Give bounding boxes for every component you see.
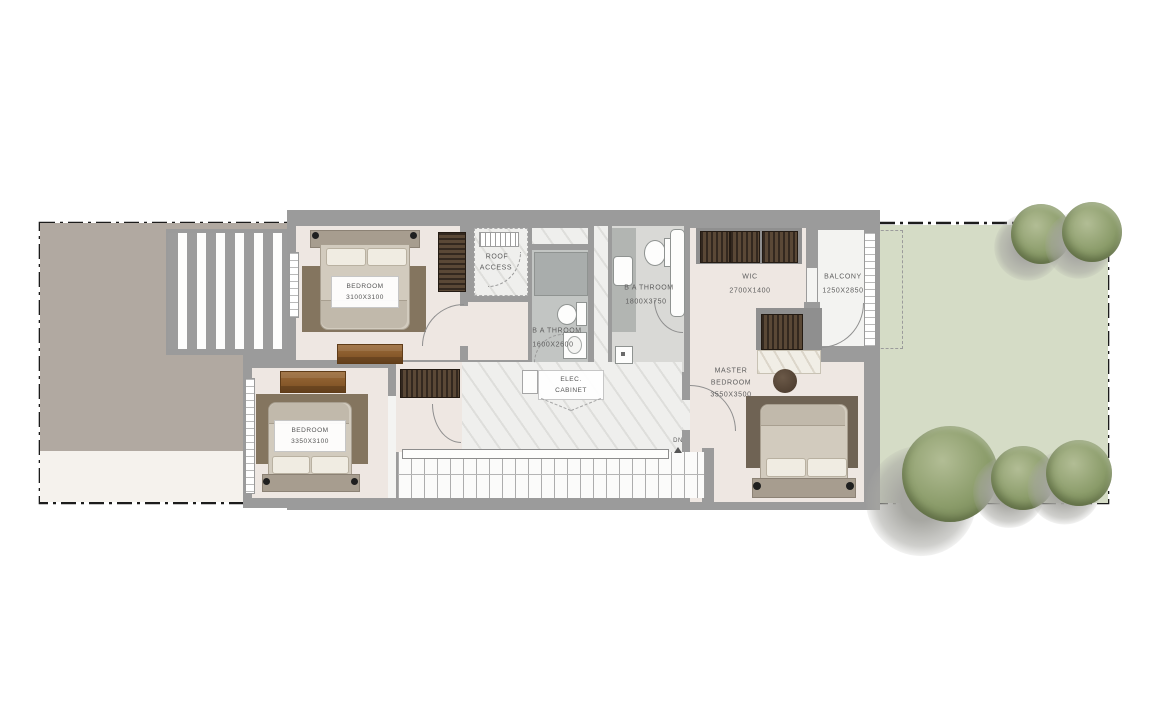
- pillow: [807, 458, 847, 477]
- balcony-railing: [864, 232, 876, 348]
- bedroom2-window: [245, 378, 255, 494]
- pillow: [311, 456, 349, 474]
- master-headboard: [752, 478, 856, 498]
- master-name-2: BEDROOM: [711, 380, 751, 387]
- vanity-stool: [773, 369, 797, 393]
- bedroom2-headboard: [262, 474, 360, 492]
- master-wardrobe: [761, 314, 803, 350]
- bathroom-small-name: B A THROOM: [532, 328, 581, 335]
- bedroom2-wall-strip: [388, 396, 396, 498]
- balcony-projection-dashed: [876, 230, 903, 349]
- toilet-bowl: [557, 304, 577, 325]
- bathroom-master-name: B A THROOM: [624, 285, 673, 292]
- bedroom1-wardrobe: [438, 232, 466, 292]
- staircase-midline: [398, 474, 704, 475]
- tree-crown: [1046, 440, 1112, 506]
- master-blanket: [761, 405, 845, 426]
- wic-dims: 2700X1400: [729, 288, 770, 295]
- tree-crown: [1062, 202, 1122, 262]
- roof-access-ladder: [479, 232, 519, 247]
- room-name: BEDROOM: [346, 283, 383, 290]
- bathroom-master-dims: 1800X3750: [625, 299, 666, 306]
- bedroom1-label: BEDROOM 3100X3100: [331, 276, 399, 308]
- bedside-lamp: [351, 478, 358, 485]
- bedside-lamp: [846, 482, 854, 490]
- bedroom2-dresser: [280, 371, 346, 393]
- master-name-1: MASTER: [715, 368, 748, 375]
- elec-cabinet-niche: [522, 370, 538, 394]
- master-door-gap: [682, 400, 690, 430]
- bedside-lamp: [312, 232, 319, 239]
- wic-wardrobe: [762, 231, 798, 263]
- pillow: [272, 456, 310, 474]
- hall-wardrobe: [400, 369, 460, 398]
- wic-window-slot: [807, 268, 817, 302]
- elec-line2: CABINET: [555, 387, 587, 394]
- elec-cabinet: ELEC. CABINET: [538, 370, 604, 400]
- entry-hall-floor: [468, 302, 528, 360]
- roof-access-label-2: ACCESS: [480, 265, 512, 272]
- wic-wardrobe: [700, 231, 730, 263]
- floor-plan: DN BEDROOM 3100X3100 BEDROOM 3350X3100: [0, 0, 1152, 728]
- balcony-dims: 1250X2850: [822, 288, 863, 295]
- wic-name: WIC: [742, 274, 757, 281]
- pergola-slats: [166, 229, 295, 355]
- master-dims: 3550X3500: [710, 392, 751, 399]
- bedroom1-dresser: [337, 344, 403, 364]
- tree: [1046, 440, 1112, 506]
- pillow: [326, 248, 366, 266]
- shower-tray: [534, 252, 588, 296]
- shower-sink: [613, 256, 633, 286]
- linen-strip: [532, 228, 588, 244]
- stairs-dn-label: DN: [673, 438, 683, 444]
- bedroom1-window: [289, 252, 299, 318]
- balcony-name: BALCONY: [824, 274, 862, 281]
- bedside-lamp: [753, 482, 761, 490]
- roof-access-label-1: ROOF: [486, 254, 509, 261]
- bedside-lamp: [263, 478, 270, 485]
- room-dims: 3350X3100: [291, 438, 329, 445]
- staircase-handrail: [402, 449, 669, 459]
- floor-drain-dot: [621, 352, 625, 356]
- room-dims: 3100X3100: [346, 294, 384, 301]
- bathroom-small-dims: 1600X2600: [532, 342, 573, 349]
- bedroom2-label: BEDROOM 3350X3100: [274, 420, 346, 452]
- toilet-bowl: [644, 240, 666, 266]
- corridor-marble-strip: [594, 226, 608, 362]
- pillow: [367, 248, 407, 266]
- bedside-lamp: [410, 232, 417, 239]
- wic-wardrobe: [730, 231, 760, 263]
- tree: [1062, 202, 1122, 262]
- elec-line1: ELEC.: [560, 376, 581, 383]
- room-name: BEDROOM: [291, 427, 328, 434]
- pillow: [766, 458, 806, 477]
- stairs-dn-arrow: [674, 447, 682, 453]
- toilet-tank: [576, 302, 587, 326]
- wall-under-balcony: [818, 346, 880, 362]
